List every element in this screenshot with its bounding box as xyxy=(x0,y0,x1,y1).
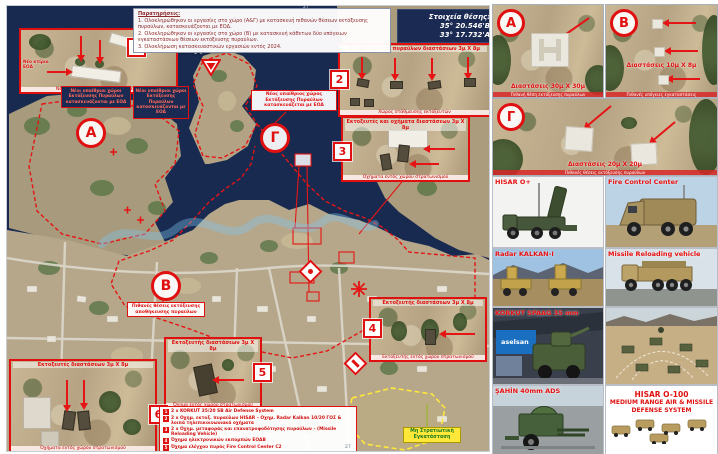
inset-4-caption: Εκτοξευτής εντός χώρου στρατωνισμού xyxy=(371,355,485,360)
system-vehicles-illustration xyxy=(606,414,717,444)
photo-a-caption: Πιθανή θέση εκτόξευσης πυραύλων xyxy=(493,92,603,97)
monument-marker-icon xyxy=(201,58,221,76)
deployment-illustration xyxy=(606,308,717,384)
sat-photo-g[interactable]: Γ Διαστάσεις 20μ Χ 20μ Πιθανές θέσεις εκ… xyxy=(492,98,718,176)
observation-line-1: 1. Ολοκληρώθηκαν οι εργασίες στο χώρο (Α… xyxy=(138,18,386,31)
photo-reloading-label: Missile Reloading vehicle xyxy=(608,250,715,258)
area-marker-g[interactable]: Γ xyxy=(260,123,290,153)
arrow-icon xyxy=(672,78,700,80)
inset-2-caption: Χώρος στάθμευσης εκτοξευτών xyxy=(340,110,489,115)
observations-box: Παρατηρήσεις: 1. Ολοκληρώθηκαν οι εργασί… xyxy=(133,8,391,53)
legend-item-text: Όχημα ελέγχου πυρός Fire Control Center … xyxy=(171,445,282,450)
photo-fcc-label: Fire Control Center xyxy=(608,178,715,186)
legend-item-text: 2 x Οχημ. εκτοξ. πυραύλων HISAR – Οχημ. … xyxy=(171,416,353,426)
tag-2[interactable]: 2 xyxy=(330,70,349,89)
photo-a-dimension: Διαστάσεις 30μ Χ 30μ xyxy=(493,83,603,90)
legend-box: 12 x KORKUT 35/20 SB Air Defense System … xyxy=(159,406,357,452)
sat-photo-b[interactable]: Β Διαστάσεις 10μ Χ 8μ Πιθανές υπόγειες ε… xyxy=(605,4,718,98)
legend-item-number: 5 xyxy=(163,445,169,451)
position-lon: 33° 17.732'Α xyxy=(402,31,490,40)
position-box: Στοιχεία θέσης: 35° 20.546'Β 33° 17.732'… xyxy=(397,9,490,43)
satellite-map[interactable]: Παρατηρήσεις: 1. Ολοκληρώθηκαν οι εργασί… xyxy=(6,5,490,452)
arrow-icon xyxy=(467,57,469,74)
area-marker-g-photo: Γ xyxy=(497,103,525,131)
note-open-site-1: Νέοι υπαίθριοι χώροι Εκτόξευσης Πυραύλων… xyxy=(61,86,131,108)
note-open-site-g: Νέος υπαίθριος χώρος Εκτόξευσης Πυραύλων… xyxy=(251,90,337,111)
photo-system-deployment[interactable] xyxy=(605,307,718,385)
legend-item-number: 4 xyxy=(163,438,169,444)
legend-item: 32 x Οχημ. μεταφοράς και επανατροφοδότησ… xyxy=(163,427,353,437)
photo-fire-control-center[interactable]: Fire Control Center xyxy=(605,176,718,248)
hisar-launcher-illustration xyxy=(493,177,603,247)
system-title-panel: HISAR O-100 MEDIUM RANGE AIR & MISSILE D… xyxy=(605,385,718,454)
arrow-icon xyxy=(394,58,396,75)
tag-3[interactable]: 3 xyxy=(333,142,352,161)
note-open-site-2: Νέοι υπαίθριοι χώροι Εκτόξευσης Πυραύλων… xyxy=(133,86,189,119)
legend-item-text: 2 x Οχημ. μεταφοράς και επανατροφοδότηση… xyxy=(171,427,353,437)
inset-2[interactable]: 4 x Εκτοξευτές πυραύλων διαστάσεων 3μ Χ … xyxy=(338,43,490,117)
position-label: Στοιχεία θέσης: xyxy=(402,13,490,22)
aselsan-sign: aselsan xyxy=(501,338,529,346)
legend-item: 4Όχημα ηλεκτρονικών εκπομπών ΕΟΔΒ xyxy=(163,438,353,444)
arrow-icon xyxy=(587,105,611,126)
arrow-icon xyxy=(218,379,244,381)
legend-item-number: 2 xyxy=(163,416,169,422)
photo-b-caption: Πιθανές υπόγειες εγκαταστάσεις xyxy=(606,92,717,97)
arrow-icon xyxy=(99,40,101,58)
tag-4[interactable]: 4 xyxy=(363,319,382,338)
inset-3[interactable]: Εκτοξευτές και οχήματα διαστάσεων 3μ Χ 8… xyxy=(341,116,470,182)
observation-line-2: 2. Ολοκληρώθηκαν οι εργασίες στο χώρο (Β… xyxy=(138,31,386,44)
photo-radar-kalkan[interactable]: Radar KALKAN-I xyxy=(492,248,604,307)
legend-item: 5Όχημα ελέγχου πυρός Fire Control Center… xyxy=(163,445,353,451)
photo-hisar-o-plus[interactable]: HISAR O+ xyxy=(492,176,604,248)
arrow-icon xyxy=(47,71,67,73)
arrow-icon xyxy=(429,148,455,150)
graticule-top: 27 xyxy=(303,5,309,10)
arrow-icon xyxy=(431,58,433,75)
legend-item-text: Όχημα ηλεκτρονικών εκπομπών ΕΟΔΒ xyxy=(171,438,266,443)
inset-1-label: Νέο κτίριο ΕΟΔ xyxy=(23,60,49,70)
photo-g-caption: Πιθανές θέσεις εκτόξευσης πυραύλων xyxy=(493,170,717,175)
photo-radar-label: Radar KALKAN-I xyxy=(495,250,601,258)
photo-g-dimension: Διαστάσεις 20μ Χ 20μ xyxy=(493,161,717,168)
area-marker-b[interactable]: Β xyxy=(151,271,181,301)
arrow-icon xyxy=(670,50,698,52)
legend-item-text: 2 x KORKUT 35/20 SB Air Defense System xyxy=(171,409,274,414)
photo-korkut[interactable]: KORKUT SPAAG 35 mm aselsan xyxy=(492,307,604,385)
inset-bottom-left[interactable]: Εκτοξευτές διαστάσεων 3μ Χ 8μ Οχήματα εν… xyxy=(9,359,157,452)
arrow-icon xyxy=(415,163,439,165)
civil-facility-label: Μη Στρατιωτική Εγκατάσταση xyxy=(403,427,461,443)
position-lat: 35° 20.546'Β xyxy=(402,22,490,31)
arrow-icon xyxy=(445,333,475,335)
fcc-illustration xyxy=(606,177,717,247)
inset-5-title: Εκτοξευτής διαστάσεων 3μ Χ 8μ xyxy=(168,340,258,352)
arrow-icon xyxy=(80,36,82,56)
legend-item-number: 3 xyxy=(163,427,169,433)
legend-item: 12 x KORKUT 35/20 SB Air Defense System xyxy=(163,409,353,415)
intel-map-page: { "map": { "observations": { "title": "Π… xyxy=(0,0,718,454)
sahin-illustration xyxy=(493,386,603,454)
photo-sahin[interactable]: ŞAHİN 40mm ADS xyxy=(492,385,604,454)
arrow-icon xyxy=(653,121,676,141)
inset-3-caption: Οχήματα εντός χώρου στρατωνισμού xyxy=(343,175,468,180)
inset-4-title: Εκτοξευτής διαστάσεων 3μ Χ 8μ xyxy=(373,300,483,306)
note-b: Πιθανές θέσεις εκτόξευσης αποθήκευσης πυ… xyxy=(127,302,205,317)
system-subtitle: MEDIUM RANGE AIR & MISSILE DEFENSE SYSTE… xyxy=(606,399,717,414)
photo-b-dimension: Διαστάσεις 10μ Χ 8μ xyxy=(606,62,717,69)
photo-korkut-label: KORKUT SPAAG 35 mm xyxy=(495,309,601,317)
arrow-icon xyxy=(361,57,363,74)
area-marker-b-photo: Β xyxy=(610,9,638,37)
arrow-icon xyxy=(668,22,696,24)
legend-item-number: 1 xyxy=(163,409,169,415)
tag-5[interactable]: 5 xyxy=(253,363,272,382)
inset-6-caption: Οχήματα εντός χώρου στρατωνισμού xyxy=(11,446,155,451)
area-marker-a[interactable]: Α xyxy=(76,118,106,148)
korkut-illustration xyxy=(493,308,603,384)
arrow-icon xyxy=(66,380,68,406)
area-marker-a-photo: Α xyxy=(497,9,525,37)
inset-3-title: Εκτοξευτές και οχήματα διαστάσεων 3μ Χ 8… xyxy=(345,119,466,131)
graticule-bottom: 27 xyxy=(345,445,351,450)
arrow-icon xyxy=(83,380,85,404)
photo-hisar-o-plus-label: HISAR O+ xyxy=(495,178,601,186)
legend-item: 22 x Οχημ. εκτοξ. πυραύλων HISAR – Οχημ.… xyxy=(163,416,353,426)
system-title: HISAR O-100 xyxy=(635,390,689,399)
observation-line-3: 3. Ολοκλήρωση κατασκευαστικών εργασιών ε… xyxy=(138,44,386,51)
photo-missile-reloading[interactable]: Missile Reloading vehicle xyxy=(605,248,718,307)
inset-6-title: Εκτοξευτές διαστάσεων 3μ Χ 8μ xyxy=(13,362,153,368)
photo-sahin-label: ŞAHİN 40mm ADS xyxy=(495,387,601,395)
inset-5[interactable]: Εκτοξευτής διαστάσεων 3μ Χ 8μ Όχημα εντό… xyxy=(164,337,262,410)
inset-4[interactable]: Εκτοξευτής διαστάσεων 3μ Χ 8μ Εκτοξευτής… xyxy=(369,297,487,362)
sat-photo-a[interactable]: Α Διαστάσεις 30μ Χ 30μ Πιθανή θέση εκτόξ… xyxy=(492,4,604,98)
